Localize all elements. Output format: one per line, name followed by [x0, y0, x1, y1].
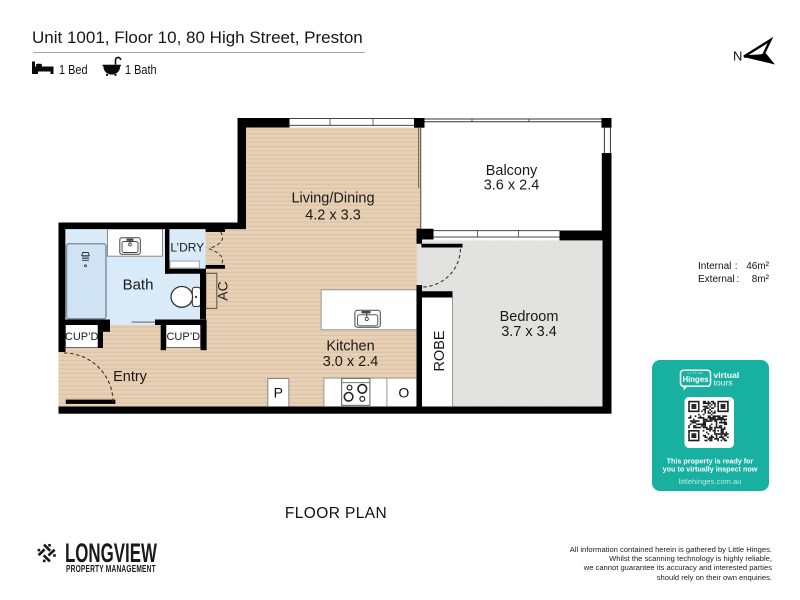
svg-text:Hinges: Hinges	[683, 375, 710, 384]
svg-text:tours: tours	[714, 377, 733, 387]
svg-text:you to virtually inspect now: you to virtually inspect now	[663, 465, 758, 474]
svg-text:littlehinges.com.au: littlehinges.com.au	[679, 477, 742, 486]
